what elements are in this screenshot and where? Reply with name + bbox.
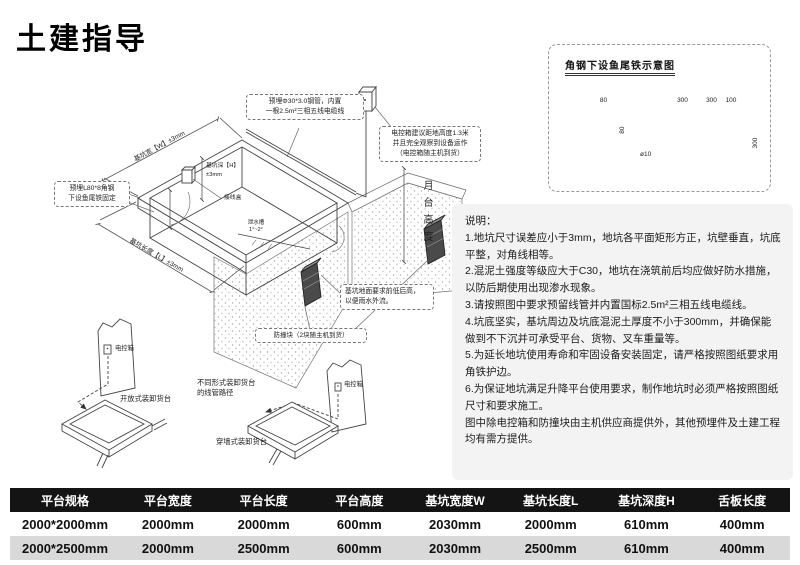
- table-cell: 2000mm: [503, 517, 599, 532]
- dim-pit-depth: 基坑深【H】: [206, 163, 239, 170]
- callout-line: 防撞块（2块随主机到货）: [260, 331, 362, 340]
- control-box-b-icon: [335, 383, 341, 391]
- dim-pit-depth-tolerance: ±3mm: [206, 172, 222, 179]
- dim-pin-depth: 300: [752, 129, 760, 157]
- dim-angle-height: 80: [619, 120, 627, 140]
- table-cell: 2000*2000mm: [10, 517, 120, 532]
- callout-line: 一根2.5m²三相五线电缆线: [251, 107, 359, 117]
- table-cell: 2030mm: [407, 541, 503, 556]
- table-cell: 2000mm: [216, 517, 312, 532]
- label-through-dock: 穿墙式装卸货台: [216, 437, 267, 446]
- note-item: 5.为延长地坑使用寿命和牢固设备安装固定，请严格按照图纸要求用角铁护边。: [465, 347, 781, 381]
- note-item: 6.为保证地坑满足升降平台使用要求，制作地坑时必须严格按照图纸尺寸和要求施工。: [465, 381, 781, 415]
- table-cell: 2000mm: [120, 517, 216, 532]
- note-item: 1.地坑尺寸误差应小于3mm，地坑各平面矩形方正，坑壁垂直，坑底平整，对角线相等…: [465, 230, 781, 264]
- label-drain-slope: 1°~2°: [243, 227, 269, 234]
- dim-angle-width: 80: [589, 97, 618, 105]
- spec-table: 平台规格 平台宽度 平台长度 平台高度 基坑宽度W 基坑长度L 基坑深度H 舌板…: [10, 488, 790, 560]
- note-item: 2.混泥土强度等级应大于C30，地坑在浇筑前后均应做好防水措施，以防后期使用出现…: [465, 263, 781, 297]
- table-cell: 2500mm: [503, 541, 599, 556]
- table-header-cell: 基坑深度H: [599, 492, 695, 509]
- table-cell: 400mm: [694, 517, 790, 532]
- note-item: 图中除电控箱和防撞块由主机供应商提供外，其他预埋件及土建工程均有需方提供。: [465, 415, 781, 449]
- table-row: 2000*2000mm 2000mm 2000mm 600mm 2030mm 2…: [10, 512, 790, 536]
- dim-dock-height: 月台高度: [419, 180, 434, 275]
- callout-pit-floor-slope: 基坑地面要求前低后高， 以便雨水外流。: [340, 284, 434, 310]
- table-cell: 610mm: [599, 541, 695, 556]
- table-header-cell: 平台规格: [10, 492, 120, 509]
- label-control-box-a: 电控箱: [115, 345, 134, 353]
- callout-line: 基坑地面要求前低后高，: [345, 287, 429, 297]
- detail-panel-title: 角钢下设鱼尾铁示意图: [565, 57, 675, 76]
- wall-a: [98, 319, 135, 396]
- label-drain-channel: 泄水槽: [243, 220, 269, 227]
- control-box-a-icon: [104, 345, 111, 354]
- table-header-cell: 基坑宽度W: [407, 492, 503, 509]
- callout-line: 以便雨水外流。: [345, 297, 429, 307]
- table-cell: 2500mm: [216, 541, 312, 556]
- callout-line: 并且完全观察到设备运作: [384, 139, 476, 149]
- notes-title: 说明：: [465, 213, 781, 230]
- table-cell: 2000*2500mm: [10, 541, 120, 556]
- callout-line: 预埋Φ30*3.0钢管，内置: [251, 97, 359, 107]
- callout-line: 下设鱼尾铁固定: [59, 194, 125, 204]
- label-conduit-note-2: 的线管路径: [197, 388, 233, 397]
- notes-panel: 说明： 1.地坑尺寸误差应小于3mm，地坑各平面矩形方正，坑壁垂直，坑底平整，对…: [452, 204, 793, 480]
- table-cell: 400mm: [694, 541, 790, 556]
- label-conduit-note: 不同形式装卸货台: [197, 378, 255, 387]
- dim-pin-span-2: 300: [697, 97, 726, 105]
- table-header-cell: 舌板长度: [694, 492, 790, 509]
- table-cell: 2000mm: [120, 541, 216, 556]
- table-cell: 600mm: [311, 541, 407, 556]
- label-junction-box: 接线盒: [224, 195, 241, 202]
- dim-pin-span-1: 300: [668, 97, 697, 105]
- wall-b: [327, 360, 366, 432]
- callout-embedded-pipe: 预埋Φ30*3.0钢管，内置 一根2.5m²三相五线电缆线: [246, 94, 364, 120]
- page-title: 土建指导: [16, 14, 148, 58]
- dim-pin-span-3: 100: [723, 97, 739, 105]
- table-cell: 2030mm: [407, 517, 503, 532]
- construction-guide-page: { "page": { "title": "土建指导" }, "detail_p…: [0, 0, 800, 565]
- table-header-row: 平台规格 平台宽度 平台长度 平台高度 基坑宽度W 基坑长度L 基坑深度H 舌板…: [10, 488, 790, 512]
- note-item: 4.坑底坚实，基坑周边及坑底混泥土厚度不小于300mm，并确保能做到不下沉并可承…: [465, 314, 781, 348]
- table-cell: 600mm: [311, 517, 407, 532]
- callout-control-box: 电控箱建议距地高度1.3米 并且完全观察到设备运作 （电控箱随主机到货）: [379, 126, 481, 162]
- label-control-box-b: 电控箱: [344, 381, 363, 389]
- callout-line: 预埋L80*8角钢: [59, 184, 125, 194]
- table-header-cell: 平台长度: [216, 492, 312, 509]
- dim-pin-diameter: ø10: [640, 151, 651, 159]
- table-header-cell: 平台高度: [311, 492, 407, 509]
- callout-line: （电控箱随主机到货）: [384, 149, 476, 159]
- label-open-dock: 开放式装卸货台: [120, 394, 171, 403]
- callout-line: 电控箱建议距地高度1.3米: [384, 129, 476, 139]
- table-header-cell: 平台宽度: [120, 492, 216, 509]
- note-item: 3.请按照图中要求预留线管并内置国标2.5m²三相五线电缆线。: [465, 297, 781, 314]
- label-bumper-blocks: 防撞块（2块随主机到货）: [255, 328, 367, 343]
- table-header-cell: 基坑长度L: [503, 492, 599, 509]
- table-row: 2000*2500mm 2000mm 2500mm 600mm 2030mm 2…: [10, 536, 790, 560]
- through-dock-drawing: [248, 360, 366, 465]
- callout-angle-steel: 预埋L80*8角钢 下设鱼尾铁固定: [54, 181, 130, 207]
- table-cell: 610mm: [599, 517, 695, 532]
